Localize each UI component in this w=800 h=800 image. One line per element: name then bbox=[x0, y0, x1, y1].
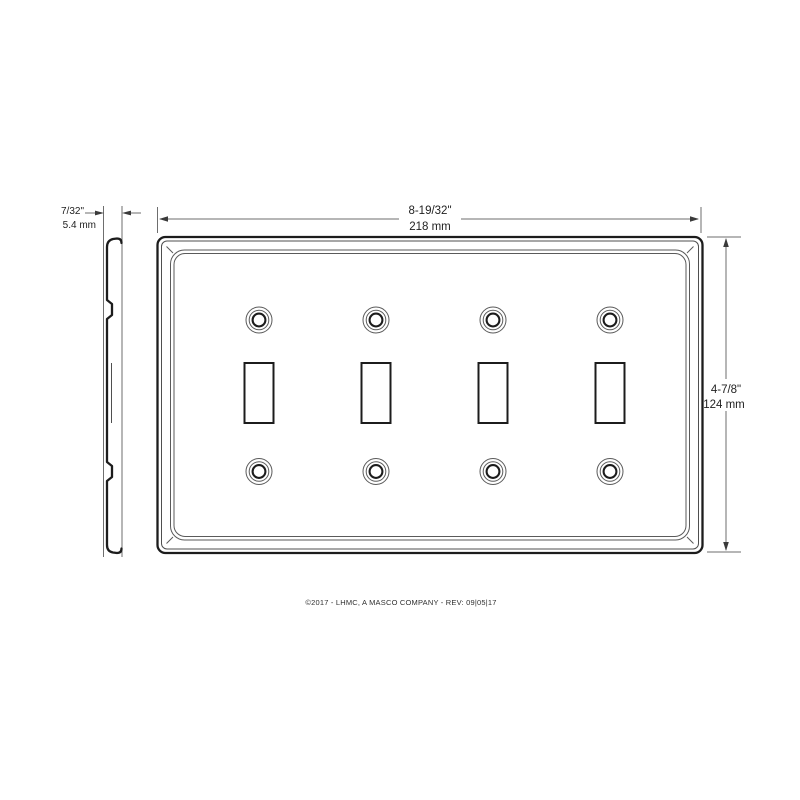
plate-outer-edge bbox=[158, 237, 703, 553]
screw-hole bbox=[363, 459, 389, 485]
width-dimension: 8-19/32" 218 mm bbox=[158, 205, 702, 233]
toggle-cutout bbox=[596, 363, 625, 423]
screw-hole bbox=[480, 307, 506, 333]
screw-hole bbox=[480, 459, 506, 485]
height-imperial-label: 4-7/8" bbox=[711, 384, 741, 396]
screw-holes-bottom-row bbox=[246, 459, 623, 485]
thickness-dimension: 7/32" 5.4 mm bbox=[61, 206, 141, 231]
screw-hole bbox=[597, 459, 623, 485]
plate-inner-edge bbox=[162, 241, 699, 549]
side-profile-view: 7/32" 5.4 mm bbox=[61, 206, 141, 557]
width-metric-label: 218 mm bbox=[409, 221, 451, 233]
height-arrow-bottom bbox=[723, 542, 729, 551]
side-profile-silhouette bbox=[107, 239, 122, 554]
height-arrow-top bbox=[723, 238, 729, 247]
thickness-arrow-right bbox=[122, 211, 131, 216]
thickness-imperial-label: 7/32" bbox=[61, 206, 84, 217]
drawing-canvas: 7/32" 5.4 mm bbox=[0, 0, 800, 800]
toggle-cutouts bbox=[245, 363, 625, 423]
thickness-arrow-left bbox=[95, 211, 104, 216]
toggle-cutout bbox=[245, 363, 274, 423]
screw-hole bbox=[246, 459, 272, 485]
front-view bbox=[158, 237, 703, 553]
corner-bevel-lines bbox=[167, 247, 694, 544]
screw-hole bbox=[246, 307, 272, 333]
width-arrow-right bbox=[690, 216, 699, 221]
plate-panel-outer-line bbox=[171, 250, 690, 540]
screw-holes-top-row bbox=[246, 307, 623, 333]
toggle-cutout bbox=[362, 363, 391, 423]
screw-hole bbox=[363, 307, 389, 333]
wallplate-technical-drawing: 7/32" 5.4 mm bbox=[0, 0, 800, 800]
thickness-metric-label: 5.4 mm bbox=[63, 220, 96, 231]
height-dimension: 4-7/8" 124 mm bbox=[703, 237, 745, 552]
screw-hole bbox=[597, 307, 623, 333]
height-metric-label: 124 mm bbox=[703, 399, 745, 411]
width-arrow-left bbox=[159, 216, 168, 221]
plate-panel-inner-line bbox=[174, 254, 686, 537]
width-imperial-label: 8-19/32" bbox=[408, 205, 451, 217]
copyright-revision-note: ©2017 - LHMC, A MASCO COMPANY - REV: 09|… bbox=[305, 598, 496, 607]
toggle-cutout bbox=[479, 363, 508, 423]
